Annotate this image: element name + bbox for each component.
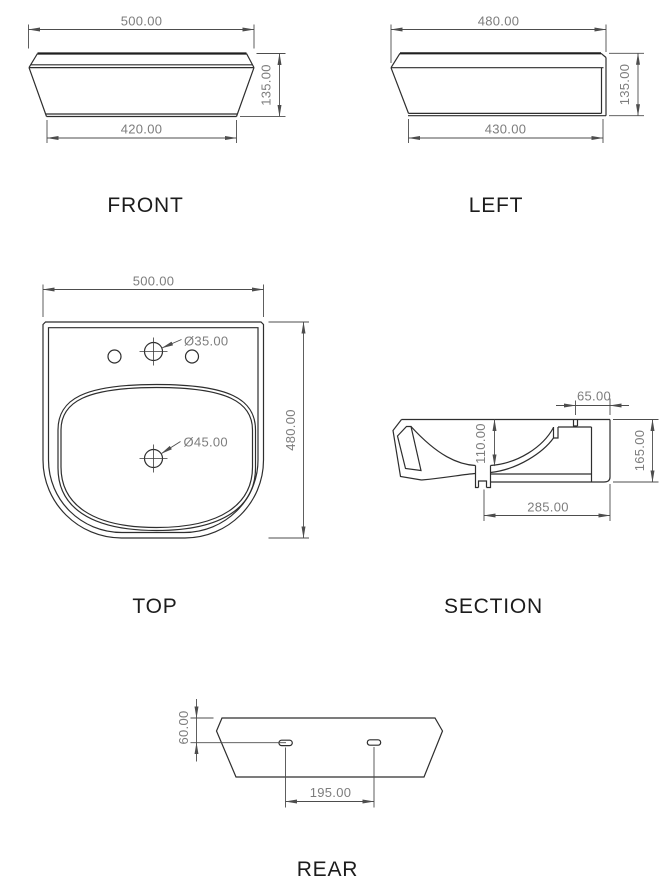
drain-hole [140, 445, 168, 473]
top-view-dimensions: 500.00 480.00 Ø35.00 Ø45.00 [43, 274, 309, 539]
rear-dim-slot-offset: 60.00 [176, 710, 191, 744]
rear-view-dimensions: 60.00 195.00 [176, 699, 374, 808]
section-dim-rear-ledge: 65.00 [577, 389, 611, 404]
top-dim-depth: 480.00 [283, 409, 298, 451]
section-dim-depth: 285.00 [527, 500, 569, 515]
section-view-outline [393, 420, 610, 488]
front-view-dimensions: 500.00 420.00 135.00 [29, 14, 286, 144]
faucet-hole [140, 338, 168, 366]
section-view-dimensions: 65.00 110.00 165.00 285.00 [473, 389, 659, 522]
left-view-label: LEFT [469, 194, 524, 217]
left-view-outline [391, 53, 606, 115]
rear-view-label: REAR [297, 858, 359, 881]
section-view: 65.00 110.00 165.00 285.00 SECTION [393, 389, 659, 619]
front-dim-width-top: 500.00 [121, 14, 163, 29]
left-dim-height: 135.00 [617, 64, 632, 106]
front-dim-width-bottom: 420.00 [121, 122, 163, 137]
left-dim-width-bottom: 430.00 [485, 122, 527, 137]
front-dim-height: 135.00 [259, 64, 274, 106]
front-view: 500.00 420.00 135.00 FRONT [29, 14, 286, 218]
side-hole-right [186, 350, 199, 363]
top-view-label: TOP [132, 595, 177, 618]
rear-dim-slot-spacing: 195.00 [310, 785, 352, 800]
basin-outline [58, 385, 256, 531]
rear-view: 60.00 195.00 REAR [176, 699, 443, 881]
mounting-slot-right [367, 740, 380, 745]
front-view-outline [29, 54, 254, 117]
section-dim-basin-depth: 110.00 [473, 423, 488, 464]
left-dim-width-top: 480.00 [478, 14, 520, 29]
front-view-label: FRONT [107, 194, 183, 217]
top-dim-width: 500.00 [133, 274, 175, 289]
top-view: 500.00 480.00 Ø35.00 Ø45.00 TOP [43, 274, 309, 619]
side-hole-left [108, 350, 121, 363]
section-dim-height: 165.00 [632, 430, 647, 472]
left-view: 480.00 430.00 135.00 LEFT [391, 14, 644, 218]
rear-view-outline [217, 718, 443, 777]
drawing-canvas: 500.00 420.00 135.00 FRONT 480.00 430.00… [0, 0, 663, 891]
top-dim-faucet-hole: Ø35.00 [184, 334, 228, 349]
section-view-label: SECTION [444, 595, 543, 618]
top-dim-drain-hole: Ø45.00 [184, 435, 228, 450]
